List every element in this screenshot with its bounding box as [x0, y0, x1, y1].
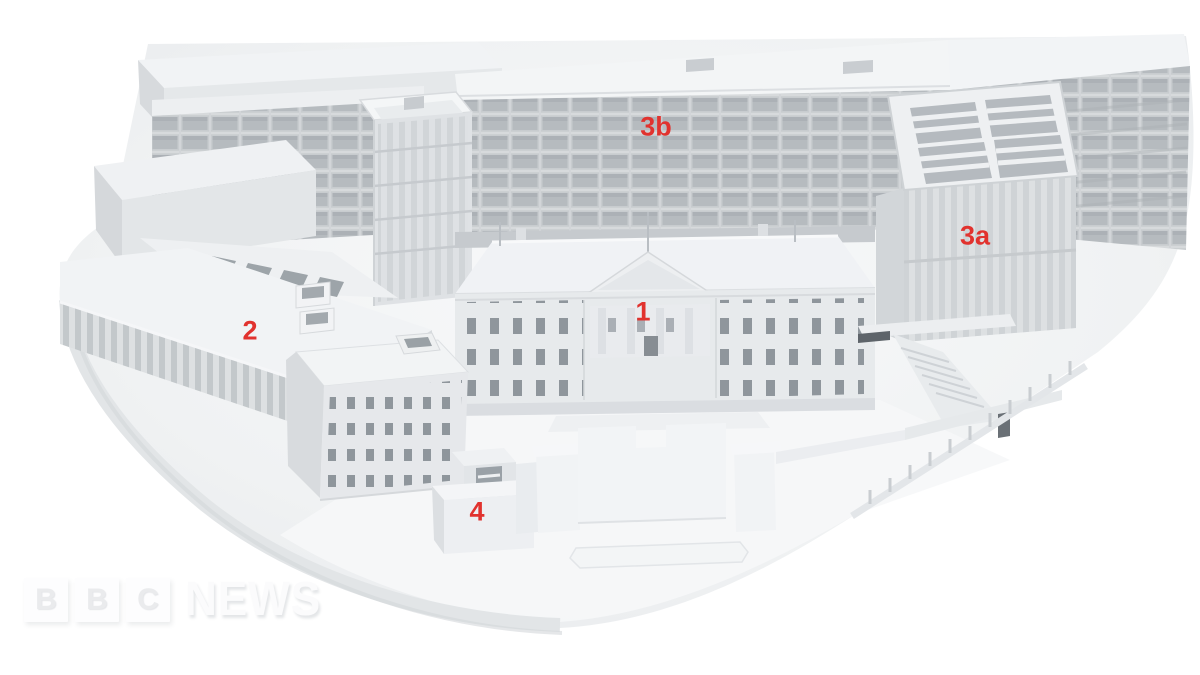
building-small-classical [286, 333, 468, 500]
annotation-4: 4 [469, 499, 484, 526]
bbc-logo-wordmark: NEWS [185, 572, 321, 627]
annotation-3a: 3a [960, 223, 990, 250]
bbc-logo-box-1: B [24, 578, 68, 622]
annotation-2: 2 [242, 318, 257, 345]
building-1 [455, 212, 875, 432]
gate-pillar-right [734, 446, 776, 532]
building-3a [876, 82, 1078, 342]
building-tower [360, 92, 472, 306]
bbc-logo-box-2: B [75, 578, 119, 622]
news-graphic: 1 2 3a 3b 4 B B C NEWS [0, 0, 1200, 675]
bbc-news-logo: B B C NEWS [24, 572, 333, 627]
gate-pillar-left [536, 447, 580, 533]
annotation-1: 1 [635, 299, 650, 326]
annotation-3b: 3b [640, 114, 672, 141]
bbc-logo-box-3: C [126, 578, 170, 622]
